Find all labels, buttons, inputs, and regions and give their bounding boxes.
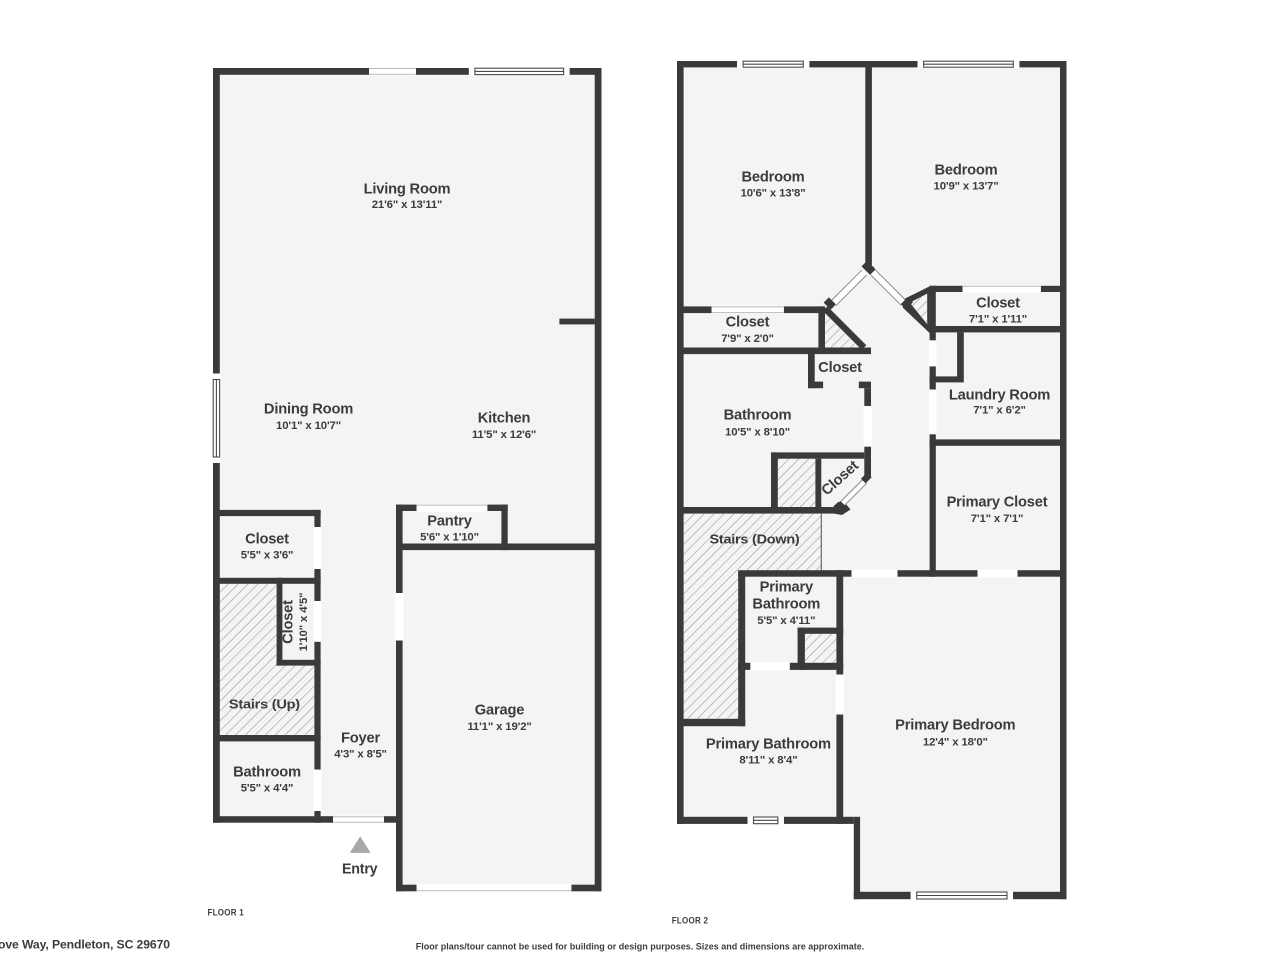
svg-text:Primary Bedroom: Primary Bedroom <box>895 718 1015 734</box>
svg-text:Kitchen: Kitchen <box>478 411 531 427</box>
svg-text:FLOOR 2: FLOOR 2 <box>672 916 709 926</box>
svg-text:Primary Bathroom: Primary Bathroom <box>706 737 831 753</box>
svg-text:10'9" x 13'7": 10'9" x 13'7" <box>934 181 999 193</box>
svg-text:21'6" x 13'11": 21'6" x 13'11" <box>372 199 443 211</box>
svg-text:10'6" x 13'8": 10'6" x 13'8" <box>741 188 806 200</box>
svg-text:7'1" x 7'1": 7'1" x 7'1" <box>971 513 1024 525</box>
svg-text:7'1" x 6'2": 7'1" x 6'2" <box>973 405 1026 417</box>
svg-text:Bedroom: Bedroom <box>741 170 804 186</box>
svg-text:Laundry Room: Laundry Room <box>949 387 1050 403</box>
svg-text:Closet: Closet <box>976 296 1020 312</box>
svg-text:11'1" x 19'2": 11'1" x 19'2" <box>467 721 531 733</box>
svg-text:Foyer: Foyer <box>341 731 380 747</box>
svg-text:ove Way, Pendleton, SC 29670: ove Way, Pendleton, SC 29670 <box>0 938 170 952</box>
svg-text:12'4" x 18'0": 12'4" x 18'0" <box>923 737 988 749</box>
svg-text:5'6" x 1'10": 5'6" x 1'10" <box>420 532 479 544</box>
svg-text:Bathroom: Bathroom <box>752 597 820 613</box>
svg-text:5'5" x 4'11": 5'5" x 4'11" <box>757 615 815 627</box>
svg-text:Entry: Entry <box>342 862 378 878</box>
svg-text:Dining Room: Dining Room <box>264 402 353 418</box>
svg-text:Stairs (Up): Stairs (Up) <box>229 697 300 712</box>
svg-text:Living Room: Living Room <box>364 182 451 198</box>
svg-text:10'1" x 10'7": 10'1" x 10'7" <box>276 420 341 432</box>
svg-text:7'9" x 2'0": 7'9" x 2'0" <box>721 333 774 345</box>
svg-text:7'1" x 1'11": 7'1" x 1'11" <box>969 314 1027 326</box>
svg-text:Bedroom: Bedroom <box>934 163 997 179</box>
svg-text:Pantry: Pantry <box>427 514 473 530</box>
svg-text:FLOOR 1: FLOOR 1 <box>208 908 245 918</box>
svg-text:8'11" x 8'4": 8'11" x 8'4" <box>739 755 797 767</box>
svg-text:Primary Closet: Primary Closet <box>947 495 1048 511</box>
svg-text:10'5" x 8'10": 10'5" x 8'10" <box>725 427 790 439</box>
svg-text:Stairs (Down): Stairs (Down) <box>710 531 800 546</box>
svg-text:Floor plans/tour cannot be use: Floor plans/tour cannot be used for buil… <box>416 941 865 951</box>
svg-text:1'10" x 4'5": 1'10" x 4'5" <box>298 593 310 652</box>
svg-text:Closet: Closet <box>245 532 289 548</box>
svg-text:Bathroom: Bathroom <box>233 765 301 781</box>
svg-text:Primary: Primary <box>760 580 814 596</box>
svg-text:5'5" x 3'6": 5'5" x 3'6" <box>241 550 294 562</box>
svg-text:Garage: Garage <box>475 703 524 719</box>
svg-text:Closet: Closet <box>818 360 862 376</box>
svg-text:5'5" x 4'4": 5'5" x 4'4" <box>241 783 294 795</box>
svg-text:11'5" x 12'6": 11'5" x 12'6" <box>472 429 536 441</box>
svg-text:Bathroom: Bathroom <box>724 408 792 424</box>
svg-text:4'3" x 8'5": 4'3" x 8'5" <box>334 749 387 761</box>
svg-text:Closet: Closet <box>726 315 770 331</box>
svg-text:Closet: Closet <box>281 600 297 644</box>
